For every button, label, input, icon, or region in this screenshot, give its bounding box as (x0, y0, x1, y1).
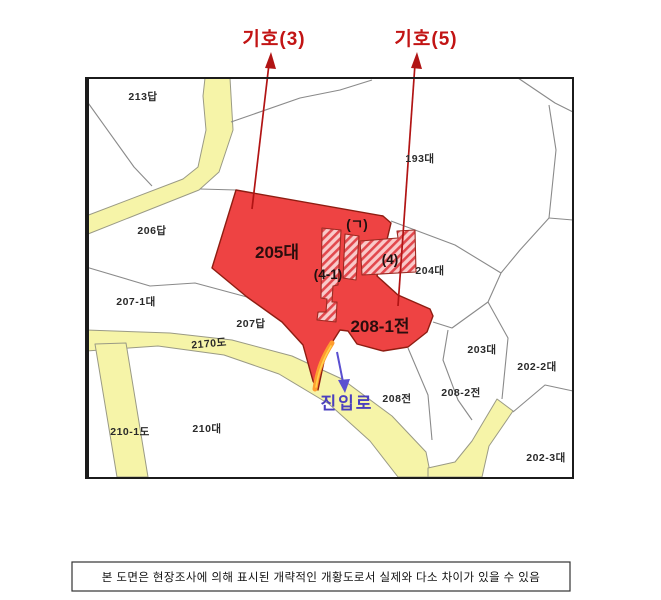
parcel-label-202-3: 202-3대 (526, 451, 566, 464)
zone-label-4-1: (4-1) (314, 267, 343, 282)
parcel-label-208-2: 208-2전 (441, 386, 481, 399)
marker3-arrowhead (265, 52, 276, 69)
access-road-label: 진입로 (321, 394, 374, 413)
zone-label-g: (ㄱ) (346, 217, 367, 232)
zone-label-4: (4) (382, 252, 399, 267)
zone-label-205: 205대 (255, 243, 299, 262)
parcel-label-213: 213답 (128, 91, 157, 103)
parcel-label-210-1: 210-1도 (110, 426, 150, 438)
parcel-label-203: 203대 (467, 343, 496, 356)
note-text: 본 도면은 현장조사에 의해 표시된 개략적인 개황도로서 실제와 다소 차이가… (102, 571, 540, 584)
parcel-label-210: 210대 (192, 422, 221, 435)
parcel-label-193: 193대 (405, 152, 434, 165)
marker5-label: 기호(5) (394, 28, 457, 50)
marker3-label: 기호(3) (242, 28, 305, 50)
parcel-label-202-2: 202-2대 (517, 360, 557, 373)
marker5-arrowhead (411, 52, 422, 69)
cadastral-map-canvas: 기호(3) 기호(5) 205대 208-1전 (ㄱ) (4-1) (4) 진입… (0, 0, 661, 600)
parcel-label-207: 207답 (236, 318, 265, 330)
hatched-strip-g (343, 234, 359, 280)
parcel-label-207-1: 207-1대 (116, 295, 156, 308)
parcel-label-204: 204대 (415, 264, 444, 277)
cadastral-map-page: 기호(3) 기호(5) 205대 208-1전 (ㄱ) (4-1) (4) 진입… (0, 0, 661, 600)
parcel-label-206: 206답 (137, 225, 166, 237)
parcel-label-208: 208전 (382, 392, 411, 405)
zone-label-208-1: 208-1전 (350, 317, 409, 336)
